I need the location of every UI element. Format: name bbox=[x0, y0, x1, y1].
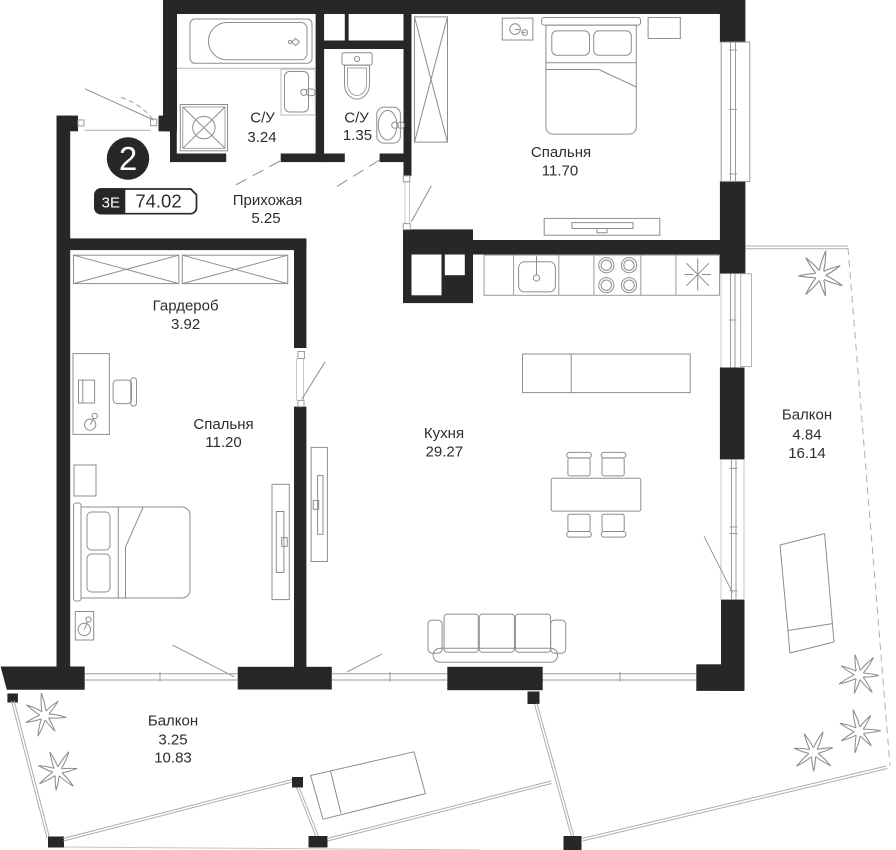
svg-text:5.25: 5.25 bbox=[251, 210, 280, 227]
svg-text:2: 2 bbox=[119, 140, 137, 177]
svg-text:С/У: С/У bbox=[250, 110, 275, 127]
svg-text:Прихожая: Прихожая bbox=[233, 192, 303, 209]
svg-text:Балкон: Балкон bbox=[782, 407, 832, 424]
svg-text:Спальня: Спальня bbox=[193, 416, 253, 433]
svg-text:1.35: 1.35 bbox=[343, 127, 372, 144]
svg-text:С/У: С/У bbox=[344, 110, 369, 127]
svg-text:4.84: 4.84 bbox=[792, 427, 821, 444]
svg-text:Спальня: Спальня bbox=[531, 144, 591, 161]
svg-text:74.02: 74.02 bbox=[135, 190, 181, 211]
svg-text:11.20: 11.20 bbox=[205, 434, 241, 451]
svg-text:Гардероб: Гардероб bbox=[153, 298, 219, 315]
svg-text:Кухня: Кухня bbox=[424, 425, 464, 442]
svg-text:29.27: 29.27 bbox=[426, 444, 464, 461]
svg-text:Балкон: Балкон bbox=[148, 713, 198, 730]
svg-text:3.24: 3.24 bbox=[247, 129, 276, 146]
svg-text:3.92: 3.92 bbox=[171, 316, 200, 333]
svg-text:16.14: 16.14 bbox=[788, 445, 826, 462]
svg-text:10.83: 10.83 bbox=[154, 750, 192, 767]
svg-text:3Е: 3Е bbox=[102, 194, 120, 211]
svg-text:11.70: 11.70 bbox=[542, 163, 578, 180]
svg-text:3.25: 3.25 bbox=[158, 732, 187, 749]
